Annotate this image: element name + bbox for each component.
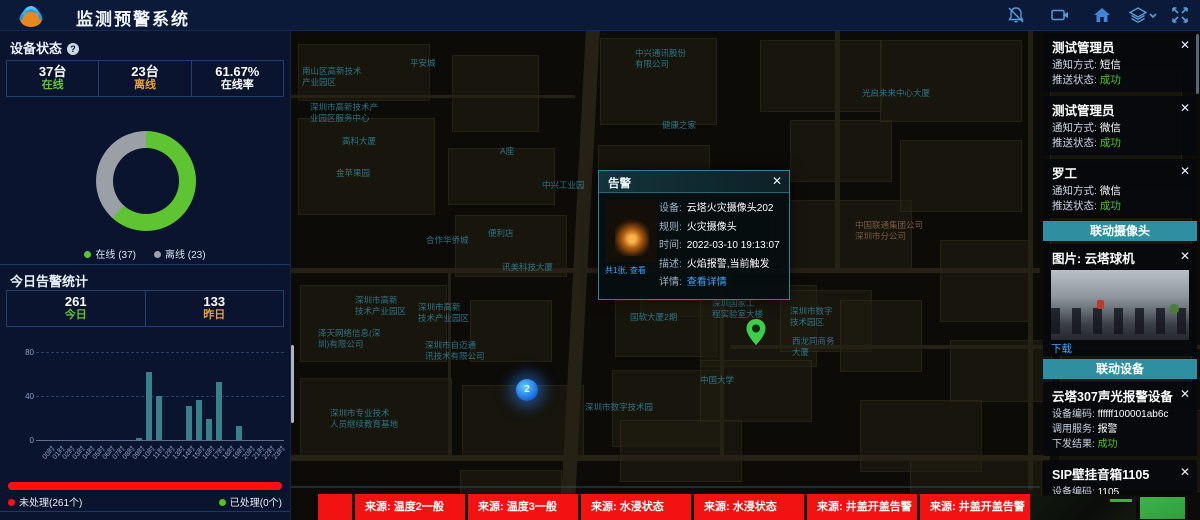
map-place-label: 国软大厦2期 [630,312,677,323]
divider [0,264,290,265]
device-title: SIP壁挂音箱1105 [1052,467,1188,483]
top-header: 监测预警系统 [0,0,1200,31]
map-place-label: 健康之家 [662,120,696,131]
gridline [36,352,284,353]
field-value: 成功 [1100,74,1121,86]
field-value: 云塔火灾摄像头202 [687,203,774,214]
device-row: 设备编码: 1105 [1052,485,1188,494]
field-value: 微信 [1100,122,1121,134]
y-axis-tick: 0 [14,436,34,445]
notification-row: 推送状态: 成功 [1052,199,1188,214]
camera-thumbnail[interactable] [1032,496,1136,520]
field-value: 2022-03-10 19:13:07 [687,240,780,251]
axis-baseline [36,440,284,441]
alarm-image-view-link[interactable]: 共1张, 查看 [605,265,665,276]
map-building [452,55,539,132]
alarm-ticker-item[interactable] [318,494,352,520]
map-place-label: 讯美科技大厦 [502,262,553,273]
notification-name: 罗工 [1052,166,1188,182]
field-value: ffffff100001ab6c [1098,409,1169,420]
legend-item: 在线 (37) [84,246,136,261]
sidebar-scrollbar[interactable] [1196,34,1199,94]
map-place-label: 南山区高新技术 产业园区 [302,66,362,88]
bell-muted-icon[interactable] [1006,6,1026,24]
linked-camera-card: 图片: 云塔球机 ✕ 下载 [1043,244,1197,356]
map-place-label: 深圳市高新技术产 业园区服务中心 [310,102,378,124]
alarm-detail-rows: 设备:云塔火灾摄像头202规则:火灾摄像头时间:2022-03-10 19:13… [659,200,785,293]
close-icon[interactable]: ✕ [1180,465,1190,479]
map-place-label: 高科大厦 [342,136,376,147]
field-value: 短信 [1100,59,1121,71]
map-bottom-divider [290,486,1040,488]
notification-card: 测试管理员✕通知方式: 短信推送状态: 成功 [1043,33,1197,92]
device-row: 设备编码: ffffff100001ab6c [1052,407,1188,422]
map-place-label: 中兴通讯股份 有限公司 [635,48,686,70]
map-place-label: 深圳国家工 程实验室大楼 [712,298,763,320]
map-building [298,118,435,215]
bar [206,419,212,440]
map-place-label: 合作华侨城 [426,235,469,246]
alarm-ticker-item[interactable]: 来源: 温度3一般 [468,494,578,520]
alarm-field-row: 时间:2022-03-10 19:13:07 [659,237,785,256]
monitoring-dashboard: 监测预警系统 平安城中兴通讯股份 有限公司南山区高新技术 产业园区深圳市高新技术… [0,0,1200,520]
map-place-label: A座 [500,146,514,157]
notification-name: 测试管理员 [1052,40,1188,56]
notification-card: 测试管理员✕通知方式: 微信推送状态: 成功 [1043,96,1197,155]
page-title: 监测预警系统 [76,5,190,30]
notification-card: 罗工✕通知方式: 微信推送状态: 成功 [1043,159,1197,218]
bar [236,426,242,440]
alarm-field-row: 描述:火焰报警,当前触发值为... [659,256,785,275]
stat-offline: 23台 离线 [98,61,190,96]
notification-row: 推送状态: 成功 [1052,73,1188,88]
legend-item: 离线 (23) [154,246,206,261]
stat-yesterday: 133 昨日 [145,291,284,326]
app-logo-icon [16,2,46,28]
device-status-table: 37台 在线 23台 离线 61.67% 在线率 [6,60,284,97]
alarm-popup-header: 告警 ✕ [599,171,789,193]
flame-art [615,218,649,256]
alarm-field-row: 设备:云塔火灾摄像头202 [659,200,785,219]
notification-row: 推送状态: 成功 [1052,136,1188,151]
map-place-label: 中国大学 [700,375,734,386]
alarm-popup: 告警 ✕ 共1张, 查看 设备:云塔火灾摄像头202规则:火灾摄像头时间:202… [598,170,790,300]
map-place-label: 深圳市数字 技术园区 [790,306,833,328]
map-road [835,30,840,270]
alarm-detail-row: 详情:查看详情 [659,274,785,293]
linked-device-card: 云塔307声光报警设备✕设备编码: ffffff100001ab6c调用服务: … [1043,382,1197,456]
donut-legend: 在线 (37)离线 (23) [0,246,290,261]
y-axis-tick: 80 [14,348,34,357]
map-pin-icon[interactable] [745,318,767,346]
notification-row: 通知方式: 短信 [1052,58,1188,73]
download-link[interactable]: 下载 [1051,341,1072,356]
close-icon[interactable]: ✕ [1180,249,1190,263]
map-building [900,140,1022,212]
map-place-label: 深圳市数字技术园 [585,402,653,413]
linked-devices-header: 联动设备 [1043,359,1197,379]
alarm-ticker-item[interactable]: 来源: 井盖开盖告警 [920,494,1030,520]
map-scrollbar[interactable] [291,345,294,423]
map-place-label: 深圳市高新 技术产业园区 [355,295,406,317]
notification-row: 通知方式: 微信 [1052,121,1188,136]
field-label: 描述: [659,259,682,270]
bar [196,400,202,440]
thumb-overlay [1110,499,1132,502]
alarm-popup-title: 告警 [608,175,631,191]
field-label: 详情: [659,277,682,288]
today-alarms-title: 今日告警统计 [10,271,88,290]
field-value: 火灾摄像头 [687,222,737,233]
map-place-label: 深圳市高新 技术产业园区 [418,302,469,324]
map-place-label: 光启未来中心大厦 [862,88,930,99]
map-place-label: 西龙同商务 大厦 [792,336,835,358]
field-value: 成功 [1100,137,1121,149]
unhandled-progress-bar [8,482,282,490]
unhandled-legend: 未处理(261个) [8,494,82,509]
y-axis-tick: 40 [14,392,34,401]
alarm-field-row: 规则:火灾摄像头 [659,219,785,238]
video-camera-icon[interactable] [1050,6,1070,24]
map-road [290,95,575,98]
map-building [700,360,812,422]
close-icon[interactable]: ✕ [1180,38,1190,52]
field-value: 报警 [1098,424,1118,435]
left-panel: 设备状态? 37台 在线 23台 离线 61.67% 在线率 在线 (37)离线… [0,30,291,520]
close-icon[interactable]: ✕ [1180,101,1190,115]
map-place-label: 深圳市自迈通 讯技术有限公司 [425,340,485,362]
field-label: 设备: [659,203,682,214]
donut-hole [113,148,179,214]
field-label: 规则: [659,222,682,233]
map-building [760,40,882,112]
stat-online-rate: 61.67% 在线率 [191,61,283,96]
notification-row: 通知方式: 微信 [1052,184,1188,199]
close-icon[interactable]: ✕ [1180,387,1190,401]
green-thumbnail[interactable] [1140,497,1185,519]
help-icon[interactable]: ? [67,43,79,55]
office-art [1169,304,1179,314]
fullscreen-icon[interactable] [1170,6,1190,24]
divider [0,511,290,512]
alarm-ticker-item[interactable]: 来源: 水浸状态 [694,494,804,520]
field-value: 成功 [1098,439,1118,450]
map-building [840,300,922,372]
map-place-label: 泽天网络信息(深 圳)有限公司 [318,328,380,350]
map-building [940,240,1032,322]
stat-today: 261 今日 [7,291,145,326]
field-value: 1105 [1098,487,1120,494]
progress-legend: 未处理(261个) 已处理(0个) [8,494,282,509]
stat-online: 37台 在线 [7,61,98,96]
map-road [448,268,451,458]
home-icon[interactable] [1092,6,1112,24]
close-icon[interactable]: ✕ [1180,164,1190,178]
hourly-alarm-bar-chart: 8040000时01时02时03时04时05时06时07时08时09时10时11… [0,340,290,480]
linked-device-card: SIP壁挂音箱1105✕设备编码: 1105 [1043,460,1197,494]
map-building [790,120,892,182]
device-status-title: 设备状态? [10,38,79,57]
bar [136,438,142,440]
camera-card-title: 图片: 云塔球机 [1052,251,1188,267]
camera-snapshot-image[interactable] [1051,270,1189,340]
map-place-label: 深圳市专业技术 人员继续教育基地 [330,408,398,430]
bar [216,382,222,440]
map-place-label: 平安城 [410,58,436,69]
device-title: 云塔307声光报警设备 [1052,389,1188,405]
alarm-ticker: 来源: 温度2一般来源: 温度3一般来源: 水浸状态来源: 水浸状态来源: 井盖… [318,494,1030,520]
device-row: 下发结果: 成功 [1052,437,1188,452]
map-road [1028,30,1033,490]
field-label: 时间: [659,240,682,251]
office-art [1051,308,1189,334]
handled-legend: 已处理(0个) [219,494,282,509]
today-alarms-table: 261 今日 133 昨日 [6,290,284,327]
office-art [1097,300,1104,309]
map-road [290,455,1050,461]
map-building [880,40,1022,122]
legend-dot [84,251,91,258]
map-place-label: 中国联通集团公司 深圳市分公司 [855,220,923,242]
bar [146,372,152,440]
view-details-link[interactable]: 查看详情 [687,277,727,288]
field-value: 火焰报警,当前触发值为... [687,259,785,270]
alarm-ticker-item[interactable]: 来源: 水浸状态 [581,494,691,520]
layers-icon[interactable] [1128,6,1158,24]
close-icon[interactable]: ✕ [772,174,782,188]
linked-camera-header: 联动摄像头 [1043,221,1197,241]
alarm-snapshot-image[interactable] [605,200,657,262]
device-row: 调用服务: 报警 [1052,422,1188,437]
field-value: 微信 [1100,185,1121,197]
alarm-ticker-item[interactable]: 来源: 井盖开盖告警 [807,494,917,520]
map-building [950,340,1052,402]
chevron-down-icon [1150,14,1156,17]
bar [186,406,192,440]
alarm-ticker-item[interactable]: 来源: 温度2一般 [355,494,465,520]
map-cluster-marker[interactable]: 2 [516,379,538,401]
bar [156,396,162,440]
legend-dot [154,251,161,258]
map-place-label: 便利店 [488,228,514,239]
field-value: 成功 [1100,200,1121,212]
map-place-label: 金苹果园 [336,168,370,179]
map-place-label: 中兴工业园 [542,180,585,191]
notification-name: 测试管理员 [1052,103,1188,119]
